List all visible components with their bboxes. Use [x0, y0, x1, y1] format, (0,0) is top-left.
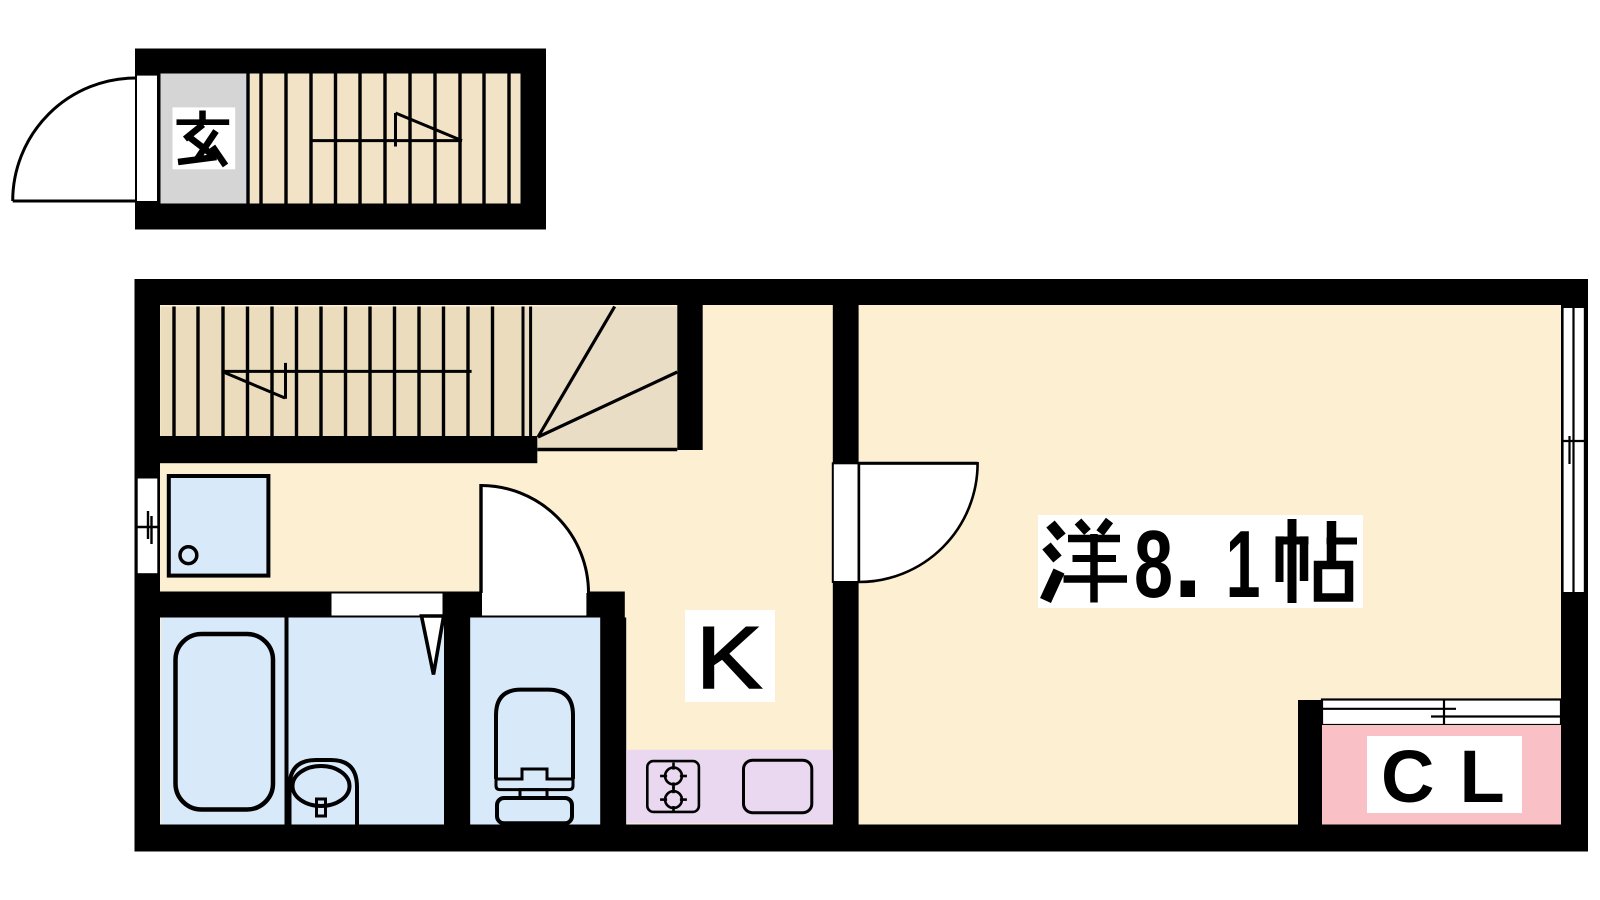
svg-text:K: K [696, 608, 762, 706]
svg-text:8: 8 [1134, 510, 1173, 617]
svg-text:CL: CL [1381, 735, 1530, 818]
svg-text:1: 1 [1226, 512, 1261, 619]
